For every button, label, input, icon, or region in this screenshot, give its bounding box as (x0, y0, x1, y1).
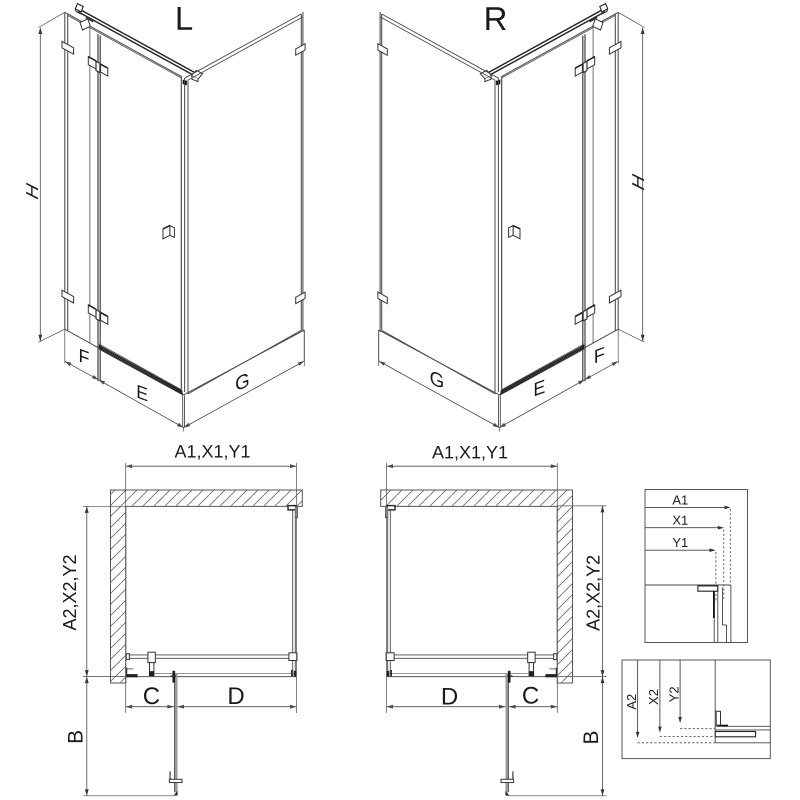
svg-text:Y1: Y1 (672, 535, 688, 550)
svg-text:A2: A2 (624, 694, 639, 710)
svg-text:E: E (136, 381, 148, 406)
svg-text:A1,X1,Y1: A1,X1,Y1 (432, 442, 508, 462)
svg-text:X2: X2 (646, 689, 661, 705)
svg-text:L: L (175, 0, 193, 37)
svg-text:A1: A1 (672, 492, 688, 507)
svg-text:E: E (533, 376, 545, 401)
svg-text:A1,X1,Y1: A1,X1,Y1 (174, 441, 250, 461)
svg-text:R: R (484, 0, 508, 37)
svg-text:C: C (522, 682, 539, 709)
svg-text:X1: X1 (672, 513, 688, 528)
svg-text:D: D (441, 683, 458, 710)
svg-text:C: C (143, 683, 160, 710)
svg-text:B: B (64, 730, 87, 744)
svg-text:F: F (79, 345, 90, 370)
svg-text:A2,X2,Y2: A2,X2,Y2 (60, 554, 80, 630)
svg-text:D: D (227, 683, 244, 710)
svg-text:F: F (594, 344, 605, 369)
svg-text:B: B (580, 730, 603, 744)
svg-text:A2,X2,Y2: A2,X2,Y2 (583, 555, 603, 631)
svg-text:Y2: Y2 (666, 686, 681, 702)
